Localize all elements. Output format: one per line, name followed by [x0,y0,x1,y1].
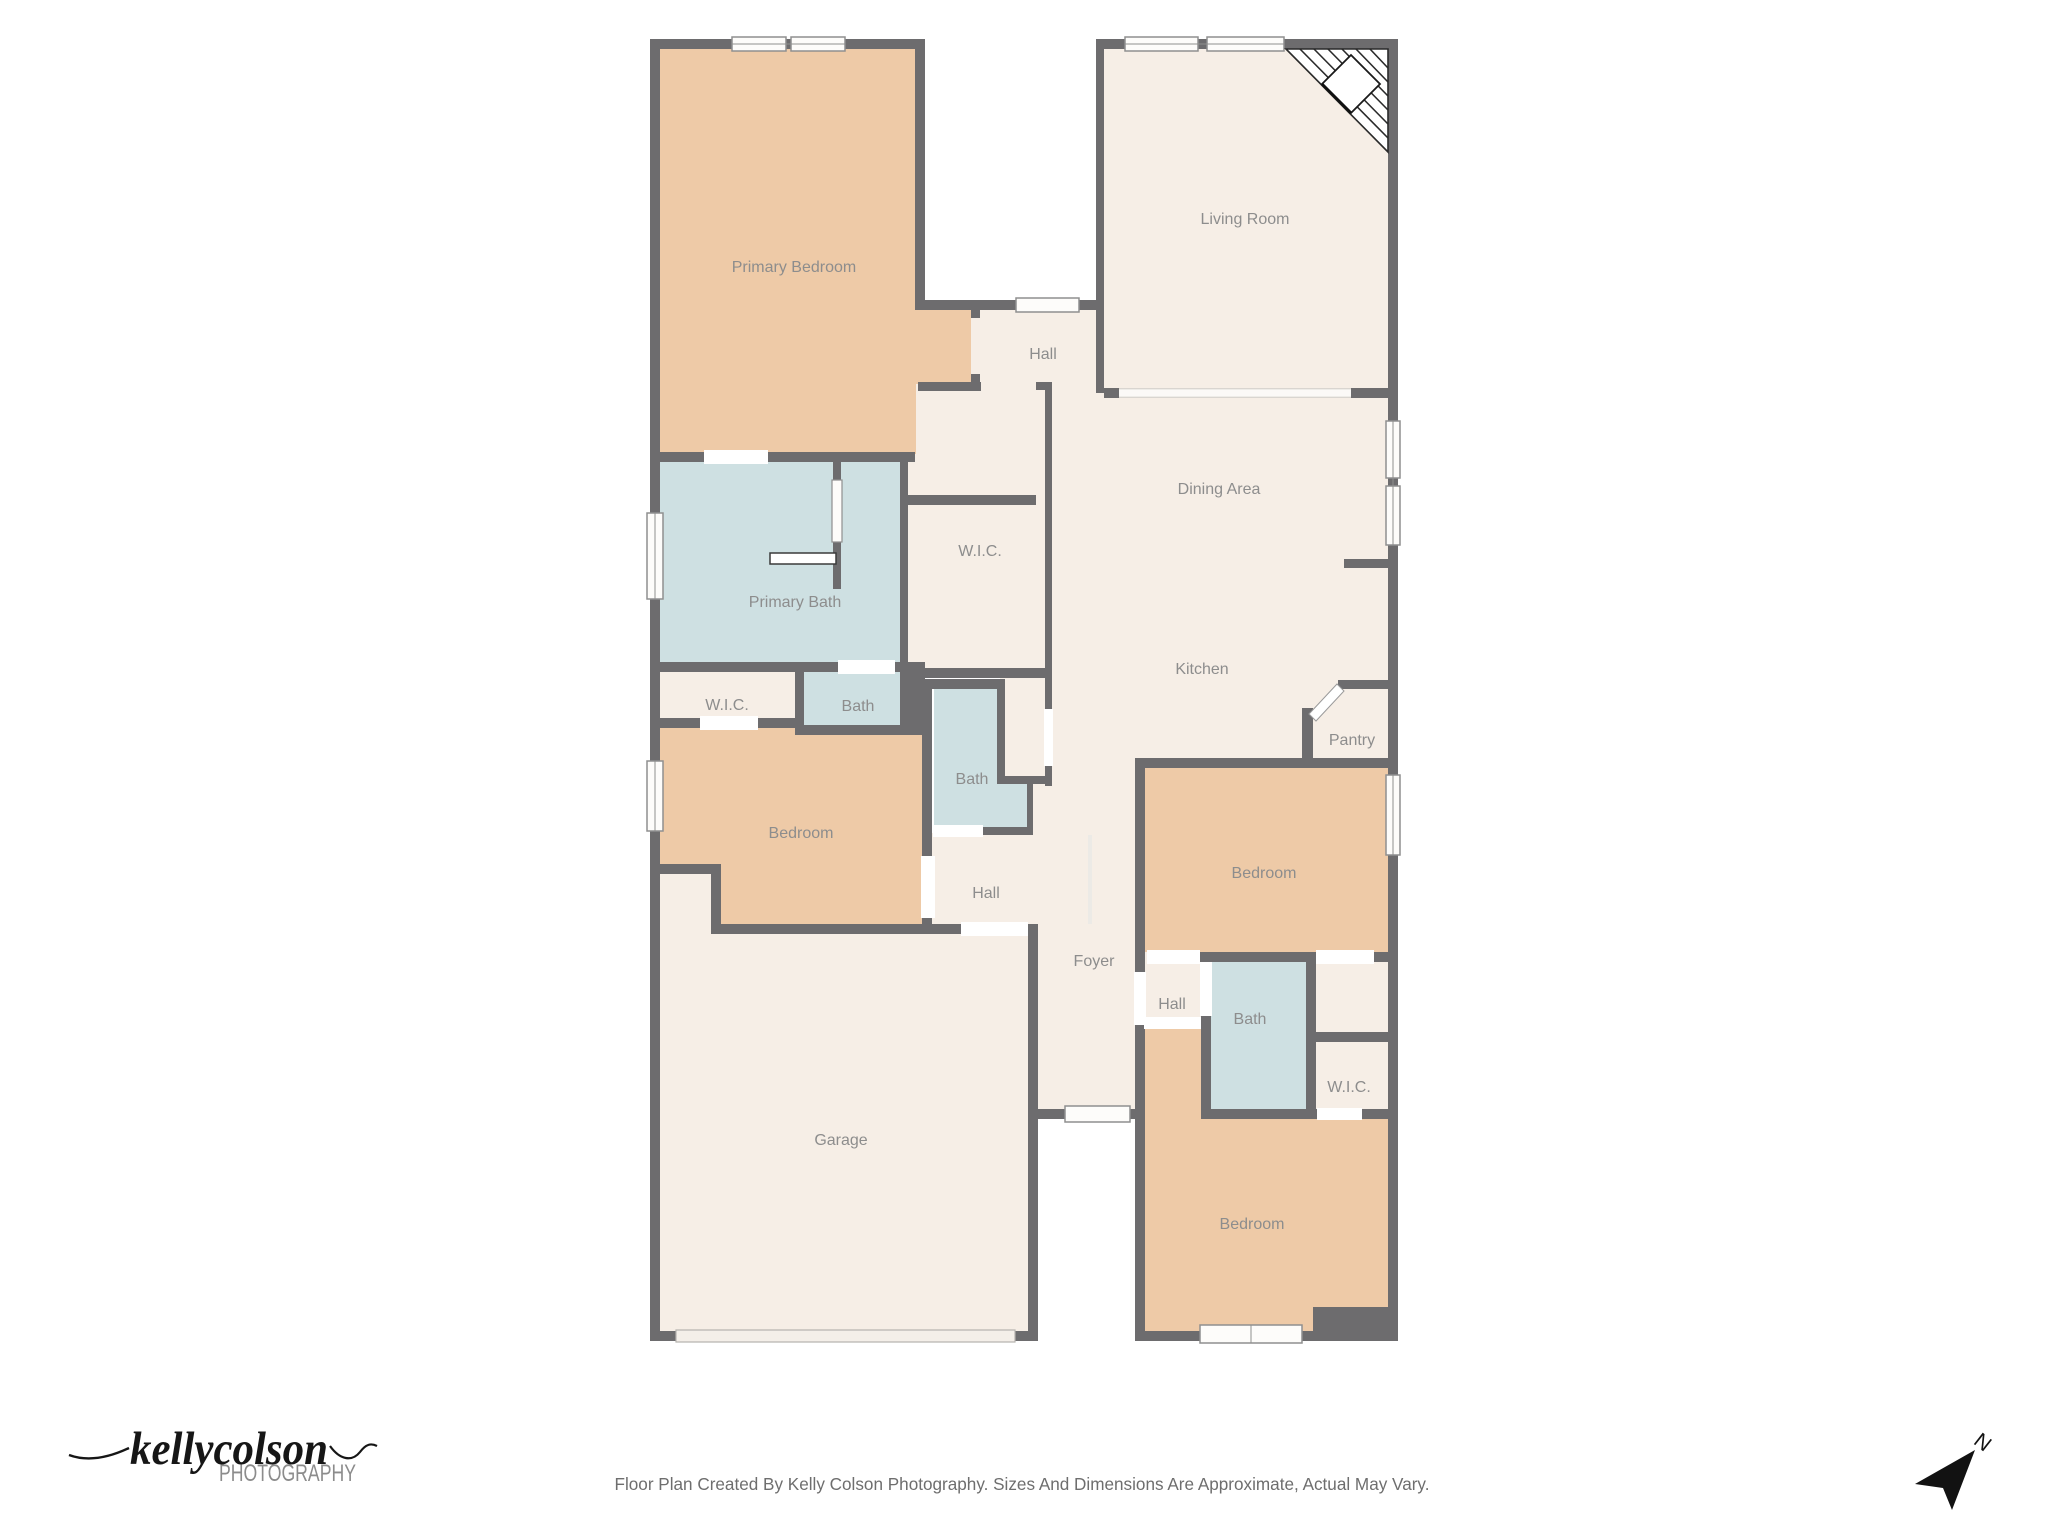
svg-text:Bedroom: Bedroom [769,825,834,842]
svg-text:Kitchen: Kitchen [1175,661,1228,678]
svg-text:Pantry: Pantry [1329,732,1375,749]
svg-text:W.I.C.: W.I.C. [958,543,1002,560]
svg-text:Hall: Hall [972,885,1000,902]
svg-text:Bath: Bath [956,771,989,788]
svg-text:PHOTOGRAPHY: PHOTOGRAPHY [219,1460,356,1487]
svg-text:Bath: Bath [842,698,875,715]
svg-text:Primary Bath: Primary Bath [749,594,841,611]
svg-text:Garage: Garage [814,1132,867,1149]
svg-text:Dining Area: Dining Area [1178,481,1261,498]
svg-text:W.I.C.: W.I.C. [1327,1079,1371,1096]
svg-text:Living Room: Living Room [1201,211,1290,228]
svg-text:Bedroom: Bedroom [1232,865,1297,882]
svg-text:Floor Plan Created By Kelly Co: Floor Plan Created By Kelly Colson Photo… [615,1474,1430,1494]
svg-text:W.I.C.: W.I.C. [705,697,749,714]
svg-text:Bedroom: Bedroom [1220,1216,1285,1233]
svg-text:Primary Bedroom: Primary Bedroom [732,259,856,276]
svg-text:Bath: Bath [1234,1011,1267,1028]
svg-text:Foyer: Foyer [1074,953,1116,970]
svg-text:Hall: Hall [1029,346,1057,363]
svg-text:Hall: Hall [1158,996,1186,1013]
